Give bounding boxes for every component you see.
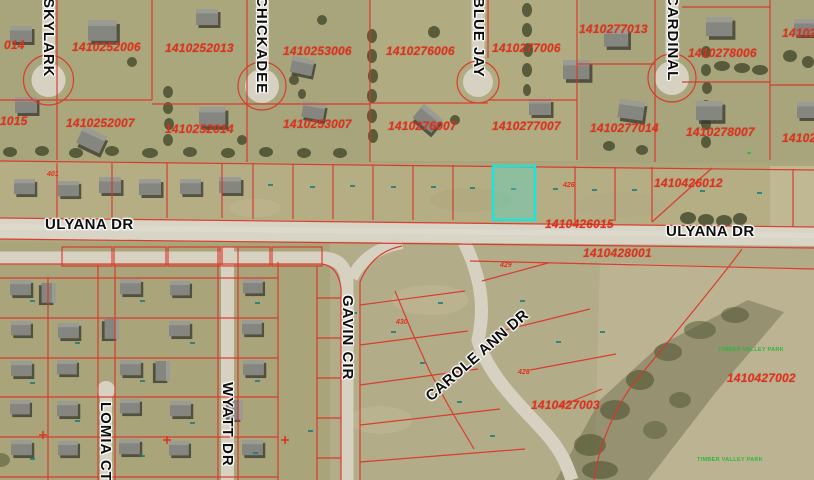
parcel-number-label[interactable]: 1410278007 bbox=[686, 125, 755, 139]
parcel-number-label[interactable]: 14102 bbox=[782, 26, 814, 40]
subdivision-name-label: TIMBER VALLEY PARK bbox=[697, 457, 763, 463]
parcel-number-label[interactable]: 1410253006 bbox=[283, 44, 352, 58]
parcel-number-label[interactable]: 1410252013 bbox=[165, 41, 234, 55]
parcel-number-label[interactable]: 1410253007 bbox=[283, 117, 352, 131]
street-name-label: WYATT DR bbox=[219, 382, 236, 467]
parcel-number-label[interactable]: 1410252006 bbox=[72, 40, 141, 54]
parcel-number-label[interactable]: 1410428001 bbox=[583, 246, 652, 260]
parcel-number-label[interactable]: 1410427003 bbox=[531, 398, 600, 412]
parcel-number-label[interactable]: 1410277013 bbox=[579, 22, 648, 36]
parcel-number-label[interactable]: 1410277007 bbox=[492, 119, 561, 133]
subdivision-name-label: TIMBER VALLEY PARK bbox=[718, 347, 784, 353]
parcel-number-label[interactable]: 014 bbox=[4, 38, 25, 52]
parcel-number-label[interactable]: 1410278006 bbox=[688, 46, 757, 60]
parcel-number-label[interactable]: 1410277014 bbox=[590, 121, 659, 135]
street-name-label: CAROLE ANN DR bbox=[422, 306, 532, 404]
street-name-label: GAVIN CIR bbox=[339, 295, 356, 380]
lot-number-label: 429 bbox=[500, 262, 512, 269]
parcel-number-label[interactable]: 14102 bbox=[782, 131, 814, 145]
parcel-number-label[interactable]: 1015 bbox=[0, 114, 28, 128]
parcel-number-label[interactable]: 1410276007 bbox=[388, 119, 457, 133]
parcel-number-label[interactable]: 1410252007 bbox=[66, 116, 135, 130]
lot-number-label: 428 bbox=[518, 369, 530, 376]
parcel-number-label[interactable]: 1410426015 bbox=[545, 217, 614, 231]
street-name-label: CARDINAL bbox=[664, 0, 681, 81]
map-label-layer: 0141410252006141025201314102530061410276… bbox=[0, 0, 814, 480]
street-name-label: SKYLARK bbox=[40, 0, 57, 78]
parcel-number-label[interactable]: 1410277006 bbox=[492, 41, 561, 55]
lot-number-label: 430 bbox=[396, 319, 408, 326]
parcel-number-label[interactable]: 1410252014 bbox=[165, 122, 234, 136]
parcel-number-label[interactable]: 1410427002 bbox=[727, 371, 796, 385]
parcel-number-label[interactable]: 1410276006 bbox=[386, 44, 455, 58]
map-canvas[interactable]: 0141410252006141025201314102530061410276… bbox=[0, 0, 814, 480]
street-name-label: BLUE JAY bbox=[470, 0, 487, 78]
street-name-label: ULYANA DR bbox=[666, 223, 755, 240]
street-name-label: ULYANA DR bbox=[45, 216, 134, 233]
parcel-number-label[interactable]: 1410426012 bbox=[654, 176, 723, 190]
street-name-label: CHICKADEE bbox=[253, 0, 270, 94]
street-name-label: LOMIA CT bbox=[97, 402, 114, 480]
lot-number-label: 426 bbox=[563, 182, 575, 189]
lot-number-label: 401 bbox=[47, 171, 59, 178]
